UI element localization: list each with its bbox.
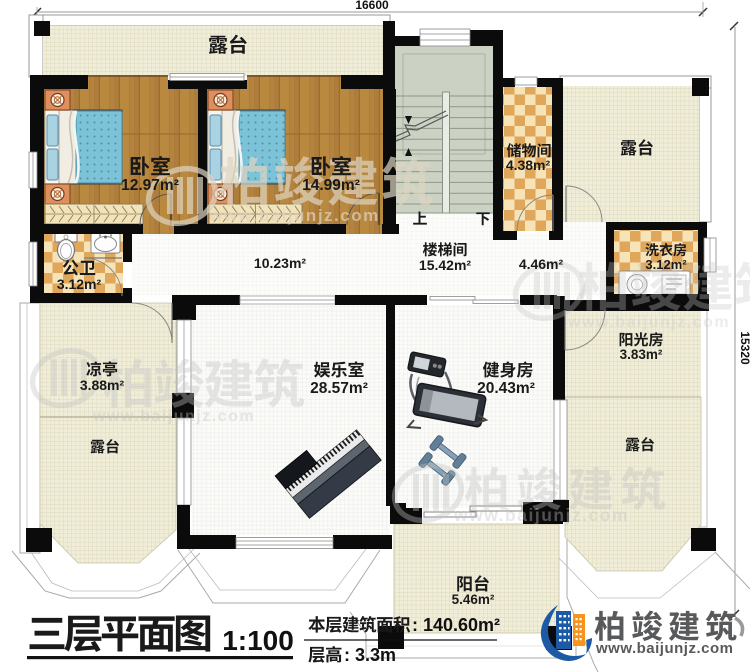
- svg-text:10.23m²: 10.23m²: [254, 255, 306, 271]
- svg-text:16600: 16600: [355, 0, 389, 12]
- svg-text:15.42m²: 15.42m²: [419, 257, 471, 273]
- svg-text:www.baijunjz.com: www.baijunjz.com: [208, 206, 380, 225]
- svg-text:www.baijunjz.com: www.baijunjz.com: [92, 408, 255, 425]
- svg-text:3.88m²: 3.88m²: [80, 377, 125, 393]
- svg-text:3.12m²: 3.12m²: [57, 276, 102, 292]
- svg-text:www.baijunjz.com: www.baijunjz.com: [453, 505, 629, 525]
- svg-text:5.46m²: 5.46m²: [452, 592, 495, 607]
- svg-text:1:100: 1:100: [222, 625, 294, 656]
- svg-text:: 140.60m²: : 140.60m²: [412, 615, 500, 635]
- svg-text:3.12m²: 3.12m²: [645, 257, 687, 272]
- svg-text:www.baijunjz.com: www.baijunjz.com: [595, 640, 733, 657]
- svg-text:4.46m²: 4.46m²: [519, 256, 564, 272]
- svg-text:3.83m²: 3.83m²: [620, 347, 663, 362]
- svg-text:4.38m²: 4.38m²: [506, 157, 551, 173]
- svg-text:: 3.3m: : 3.3m: [344, 645, 396, 665]
- svg-text:20.43m²: 20.43m²: [477, 380, 535, 397]
- svg-text:www.baijunjz.com: www.baijunjz.com: [567, 314, 730, 331]
- svg-text:12.97m²: 12.97m²: [121, 177, 179, 194]
- svg-text:28.57m²: 28.57m²: [310, 380, 368, 397]
- svg-text:15320: 15320: [738, 331, 750, 365]
- svg-text:14.99m²: 14.99m²: [302, 177, 360, 194]
